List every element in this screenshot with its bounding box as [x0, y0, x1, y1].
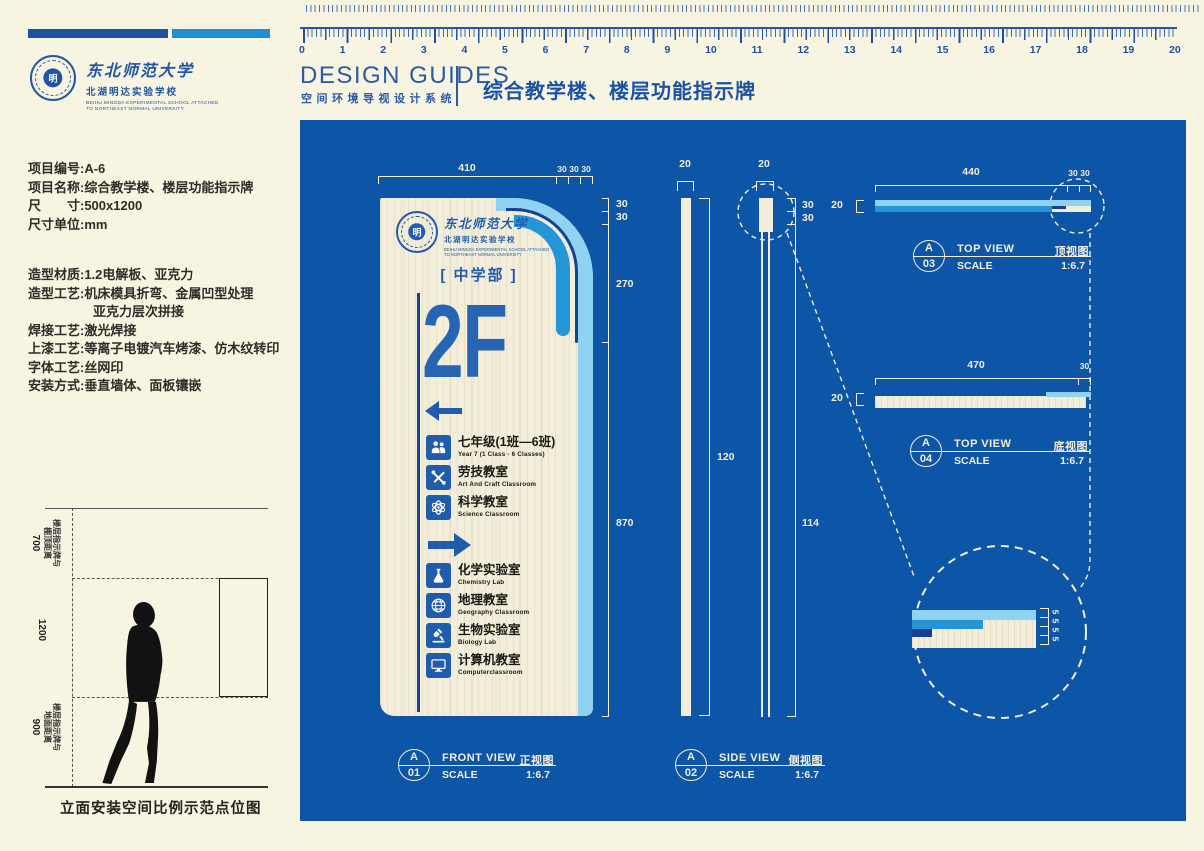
ruler-number: 11 [752, 44, 763, 56]
tick [787, 224, 795, 225]
ceiling-distance-value: 700 [31, 535, 42, 552]
sign-school-en-line2: TO NORTHEAST NORMAL UNIVERSITY [444, 252, 522, 257]
view-code-badge: A 03 [913, 240, 945, 272]
sign-university-name: 东北师范大学 [444, 213, 574, 232]
scale-label: SCALE [954, 455, 990, 467]
scale-label: SCALE [957, 260, 993, 272]
tick [1078, 378, 1079, 385]
ground-distance-value: 900 [31, 719, 42, 736]
side-view-bar1 [681, 198, 691, 716]
layer-thickness: 5 [1050, 619, 1060, 624]
view-code-badge: A 04 [910, 435, 942, 467]
layer-thickness: 5 [1050, 637, 1060, 642]
dim-front-width: 410 [447, 162, 487, 174]
drawing-panel: 明 东北师范大学 北湖明达实验学校 BEIHU MINGDA EXPERIMEN… [300, 120, 1186, 821]
tick [699, 198, 709, 199]
microscope-icon [426, 623, 451, 648]
room-row: 计算机教室Computerclassroom [426, 653, 584, 683]
ruler-number: 5 [502, 44, 508, 56]
dim-line [795, 198, 796, 717]
ruler-number: 1 [340, 44, 346, 56]
dim-bottom-20: 20 [827, 392, 847, 404]
sign-logo-texts: 东北师范大学 北湖明达实验学校 BEIHU MINGDA EXPERIMENTA… [444, 213, 574, 257]
spec-line: 造型工艺:机床模具折弯、金属凹型处理 [28, 285, 300, 304]
view-code-badge: A 02 [675, 749, 707, 781]
brand-bar-dark [28, 29, 168, 38]
ruler-number: 20 [1169, 44, 1181, 56]
dim-bottom-30: 30 [1078, 360, 1091, 372]
ruler-number: 6 [543, 44, 549, 56]
tick [568, 176, 569, 184]
room-row: 科学教室Science Classroom [426, 495, 584, 525]
floor-number: 2F [422, 290, 507, 394]
ruler-number: 16 [983, 44, 995, 56]
room-name-cn: 计算机教室 [458, 653, 523, 668]
ruler-number: 19 [1123, 44, 1135, 56]
dim-line [1048, 608, 1049, 645]
tick [1090, 378, 1091, 385]
school-logo: 明 [30, 55, 76, 101]
dim-side-30b: 30 [802, 212, 822, 224]
tick [1040, 626, 1048, 627]
spec-line: 字体工艺:丝网印 [28, 359, 300, 378]
school-name-en-line2: TO NORTHEAST NORMAL UNIVERSITY [86, 107, 184, 112]
view-number: 03 [914, 258, 944, 270]
detail-mid-layer [912, 620, 983, 629]
layer-thickness: 5 [1050, 628, 1060, 633]
room-name-en: Art And Craft Classroom [458, 481, 536, 488]
view-code: A [911, 437, 941, 449]
dim-line [875, 185, 1091, 186]
right-arrow-icon [426, 525, 584, 563]
ruler-top-ticks [306, 5, 1202, 12]
ruler-number: 18 [1076, 44, 1088, 56]
sign-school-name: 北湖明达实验学校 [444, 234, 574, 245]
room-name-cn: 化学实验室 [458, 563, 521, 578]
dim-front-270: 270 [616, 278, 646, 290]
school-name-en-line1: BEIHU MINGDA EXPERIMENTAL SCHOOL ATTACHE… [86, 101, 219, 106]
dim-side-30a: 30 [802, 199, 822, 211]
top-bar-navy-layer [1052, 206, 1066, 209]
ruler-number: 9 [664, 44, 670, 56]
sign-placement-rect [219, 578, 268, 697]
ruler-number: 3 [421, 44, 427, 56]
side-view-bar2-line1 [761, 232, 763, 717]
dim-side-20a: 20 [669, 158, 701, 170]
design-system-subtitle: 空间环境导视设计系统 [301, 90, 456, 106]
tick [1090, 185, 1091, 192]
tick [1067, 185, 1068, 192]
scale-value: 1:6.7 [526, 769, 550, 781]
tick [1040, 635, 1048, 636]
room-name-en: Biology Lab [458, 639, 521, 646]
tick [378, 176, 379, 184]
school-emblem-icon: 明 [30, 55, 76, 101]
scale-value: 1:6.7 [1061, 260, 1085, 272]
tick [580, 176, 581, 184]
tick [1040, 617, 1048, 618]
students-icon [426, 435, 451, 460]
view-code: A [676, 751, 706, 763]
spec-line: 焊接工艺:激光焊接 [28, 322, 300, 341]
view-name-cn: 顶视图 [1055, 243, 1090, 259]
bottom-bar-light-strip [1046, 392, 1091, 397]
spec-group: 造型材质:1.2电解板、亚克力造型工艺:机床模具折弯、金属凹型处理 亚克力层次拼… [28, 266, 300, 396]
dim-top-30a: 30 [1067, 167, 1079, 179]
elevation-caption: 立面安装空间比例示范点位图 [60, 797, 262, 818]
tick [1079, 185, 1080, 192]
sign-navy-band-cap [575, 336, 579, 343]
ceiling-distance-text1: 楼层指示牌与 [52, 519, 62, 567]
room-name-cn: 生物实验室 [458, 623, 521, 638]
sign-school-name-en: BEIHU MINGDA EXPERIMENTAL SCHOOL ATTACHE… [444, 247, 574, 257]
ground-distance-text2: 地面距离 [43, 711, 53, 743]
school-name: 北湖明达实验学校 [86, 84, 276, 98]
school-name-en: BEIHU MINGDA EXPERIMENTAL SCHOOL ATTACHE… [86, 101, 276, 113]
side-view-bar2-line2 [768, 232, 770, 717]
sign-logo: 明 [396, 211, 438, 253]
section-label: [ 中学部 ] [390, 264, 568, 285]
tools-icon [426, 465, 451, 490]
room-name-cn: 劳技教室 [458, 465, 536, 480]
sign-front-view: 明 东北师范大学 北湖明达实验学校 BEIHU MINGDA EXPERIMEN… [380, 198, 593, 716]
tick [602, 224, 609, 225]
ceiling-distance-text2: 棚顶距离 [43, 527, 53, 559]
spec-line: 尺寸单位:mm [28, 216, 300, 235]
ground-distance-text1: 楼层指示牌与 [52, 703, 62, 751]
person-silhouette [96, 601, 188, 787]
spec-group: 项目编号:A-6项目名称:综合教学楼、楼层功能指示牌尺 寸:500x1200尺寸… [28, 160, 300, 234]
tick [602, 198, 609, 199]
view-number: 04 [911, 453, 941, 465]
spec-line: 安装方式:垂直墙体、面板镶嵌 [28, 377, 300, 396]
ruler-number: 12 [797, 44, 809, 56]
layer-thickness-labels: 5555 [1053, 608, 1067, 648]
tick [875, 185, 876, 192]
tick [602, 716, 609, 717]
sign-emblem-icon: 明 [396, 211, 438, 253]
tick [1040, 608, 1048, 609]
view-name-en: TOP VIEW [957, 243, 1014, 259]
top-bar-mid-layer [875, 206, 1052, 213]
ruler-number: 2 [380, 44, 386, 56]
ceiling-line [45, 508, 268, 509]
ruler-major-ticks [303, 29, 1175, 43]
dim-line [709, 198, 710, 716]
view-code: A [399, 751, 429, 763]
dim-side-120: 120 [717, 451, 747, 463]
university-name: 东北师范大学 [86, 57, 276, 81]
spec-line: 项目编号:A-6 [28, 160, 300, 179]
dim-top-20: 20 [827, 199, 847, 211]
spec-line: 尺 寸:500x1200 [28, 197, 300, 216]
view-code: A [914, 242, 944, 254]
scale-label: SCALE [719, 769, 755, 781]
room-row: 劳技教室Art And Craft Classroom [426, 465, 584, 495]
tick [1040, 644, 1048, 645]
layer-thickness: 5 [1050, 610, 1060, 615]
design-sheet: 明 东北师范大学 北湖明达实验学校 BEIHU MINGDA EXPERIMEN… [0, 0, 1204, 851]
tick [787, 211, 795, 212]
dim-front-30b: 30 [568, 163, 580, 175]
top-view-bar [875, 200, 1091, 212]
ruler-number: 0 [299, 44, 305, 56]
detail-navy-layer [912, 629, 932, 637]
ruler-number: 14 [890, 44, 902, 56]
ruler-number: 4 [461, 44, 467, 56]
view-number: 02 [676, 767, 706, 779]
ruler-numbers: 01234567891011121314151617181920 [299, 44, 1181, 56]
sign-emblem-seal: 明 [408, 223, 425, 240]
ceiling-distance-label: 楼层指示牌与 棚顶距离 700 [27, 485, 65, 601]
ruler-number: 10 [705, 44, 717, 56]
tick [875, 378, 876, 385]
room-name-cn: 七年级(1班—6班) [458, 435, 555, 450]
brand-bar-light [172, 29, 270, 38]
sign-pinstripe [417, 293, 420, 712]
view-name-en: TOP VIEW [954, 438, 1011, 454]
dim-front-r30b: 30 [616, 211, 646, 223]
bottom-view-bar [875, 396, 1086, 408]
design-guides-title: DESIGN GUIDES [300, 62, 510, 90]
view-name-en: SIDE VIEW [719, 752, 780, 768]
scale-value: 1:6.7 [795, 769, 819, 781]
left-arrow-icon [424, 398, 462, 424]
dim-front-870: 870 [616, 517, 646, 529]
view-name-en: FRONT VIEW [442, 752, 516, 768]
top-view-label: A 03 TOP VIEW顶视图 SCALE1:6.7 [913, 240, 1091, 274]
front-view-label: A 01 FRONT VIEW正视图 SCALE1:6.7 [398, 749, 556, 783]
view-number: 01 [399, 767, 429, 779]
thickness-bracket [856, 200, 864, 213]
spec-line: 造型材质:1.2电解板、亚克力 [28, 266, 300, 285]
thickness-bracket [856, 393, 864, 406]
tick [787, 198, 795, 199]
tick [592, 176, 593, 184]
room-row: 生物实验室Biology Lab [426, 623, 584, 653]
view-name-cn: 侧视图 [789, 752, 824, 768]
dim-top-30b: 30 [1079, 167, 1091, 179]
bottom-bar-wood [875, 396, 1086, 408]
wall-dashed-line [72, 508, 73, 787]
spec-line: 上漆工艺:等离子电镀汽车烤漆、仿木纹转印 [28, 340, 300, 359]
flask-icon [426, 563, 451, 588]
atom-icon [426, 495, 451, 520]
room-name-en: Science Classroom [458, 511, 520, 518]
ruler-number: 15 [937, 44, 949, 56]
page-title: 综合教学楼、楼层功能指示牌 [483, 75, 756, 104]
tick [556, 176, 557, 184]
view-name-cn: 底视图 [1054, 438, 1089, 454]
tick [602, 211, 609, 212]
room-name-en: Chemistry Lab [458, 579, 521, 586]
tick [602, 342, 609, 343]
room-name-en: Computerclassroom [458, 669, 523, 676]
dim-bottom-470: 470 [956, 359, 996, 371]
dim-front-30c: 30 [580, 163, 592, 175]
ruler-number: 8 [624, 44, 630, 56]
tick [787, 716, 795, 717]
room-list: 七年级(1班—6班)Year 7 (1 Class - 6 Classes)劳技… [426, 435, 584, 683]
side-view-label: A 02 SIDE VIEW侧视图 SCALE1:6.7 [675, 749, 825, 783]
brand-texts: 东北师范大学 北湖明达实验学校 BEIHU MINGDA EXPERIMENTA… [86, 57, 276, 113]
room-name-en: Geography Classroom [458, 609, 529, 616]
dim-front-30a: 30 [556, 163, 568, 175]
ground-distance-label: 楼层指示牌与 地面距离 900 [27, 669, 65, 785]
room-name-cn: 地理教室 [458, 593, 529, 608]
dim-front-r30a: 30 [616, 198, 646, 210]
dim-line [875, 378, 1091, 379]
room-name-cn: 科学教室 [458, 495, 520, 510]
width-bracket [756, 181, 774, 191]
computer-icon [426, 653, 451, 678]
globe-icon [426, 593, 451, 618]
dim-line [378, 176, 593, 177]
tick [699, 715, 709, 716]
sign-height-value: 1200 [36, 619, 47, 641]
width-bracket [677, 181, 694, 191]
sign-height-label: 1200 [34, 600, 50, 660]
spec-line: 项目名称:综合教学楼、楼层功能指示牌 [28, 179, 300, 198]
view-code-badge: A 01 [398, 749, 430, 781]
header-divider [456, 66, 458, 106]
detail-light-layer [912, 610, 1036, 620]
room-row: 七年级(1班—6班)Year 7 (1 Class - 6 Classes) [426, 435, 584, 465]
bottom-view-label: A 04 TOP VIEW底视图 SCALE1:6.7 [910, 435, 1090, 469]
ruler-number: 17 [1030, 44, 1042, 56]
project-specs: 项目编号:A-6项目名称:综合教学楼、楼层功能指示牌尺 寸:500x1200尺寸… [28, 160, 300, 396]
room-row: 化学实验室Chemistry Lab [426, 563, 584, 593]
scale-label: SCALE [442, 769, 478, 781]
ruler-number: 13 [844, 44, 856, 56]
spec-line: 亚克力层次拼接 [28, 303, 300, 322]
ruler-number: 7 [583, 44, 589, 56]
scale-value: 1:6.7 [1060, 455, 1084, 467]
room-name-en: Year 7 (1 Class - 6 Classes) [458, 451, 555, 458]
room-row: 地理教室Geography Classroom [426, 593, 584, 623]
dim-side-20b: 20 [748, 158, 780, 170]
emblem-seal: 明 [43, 68, 62, 87]
dim-side-114: 114 [802, 517, 832, 529]
view-name-cn: 正视图 [520, 752, 555, 768]
dim-top-440: 440 [951, 166, 991, 178]
side-view-bar2-cap [759, 198, 773, 232]
dim-line [608, 198, 609, 717]
